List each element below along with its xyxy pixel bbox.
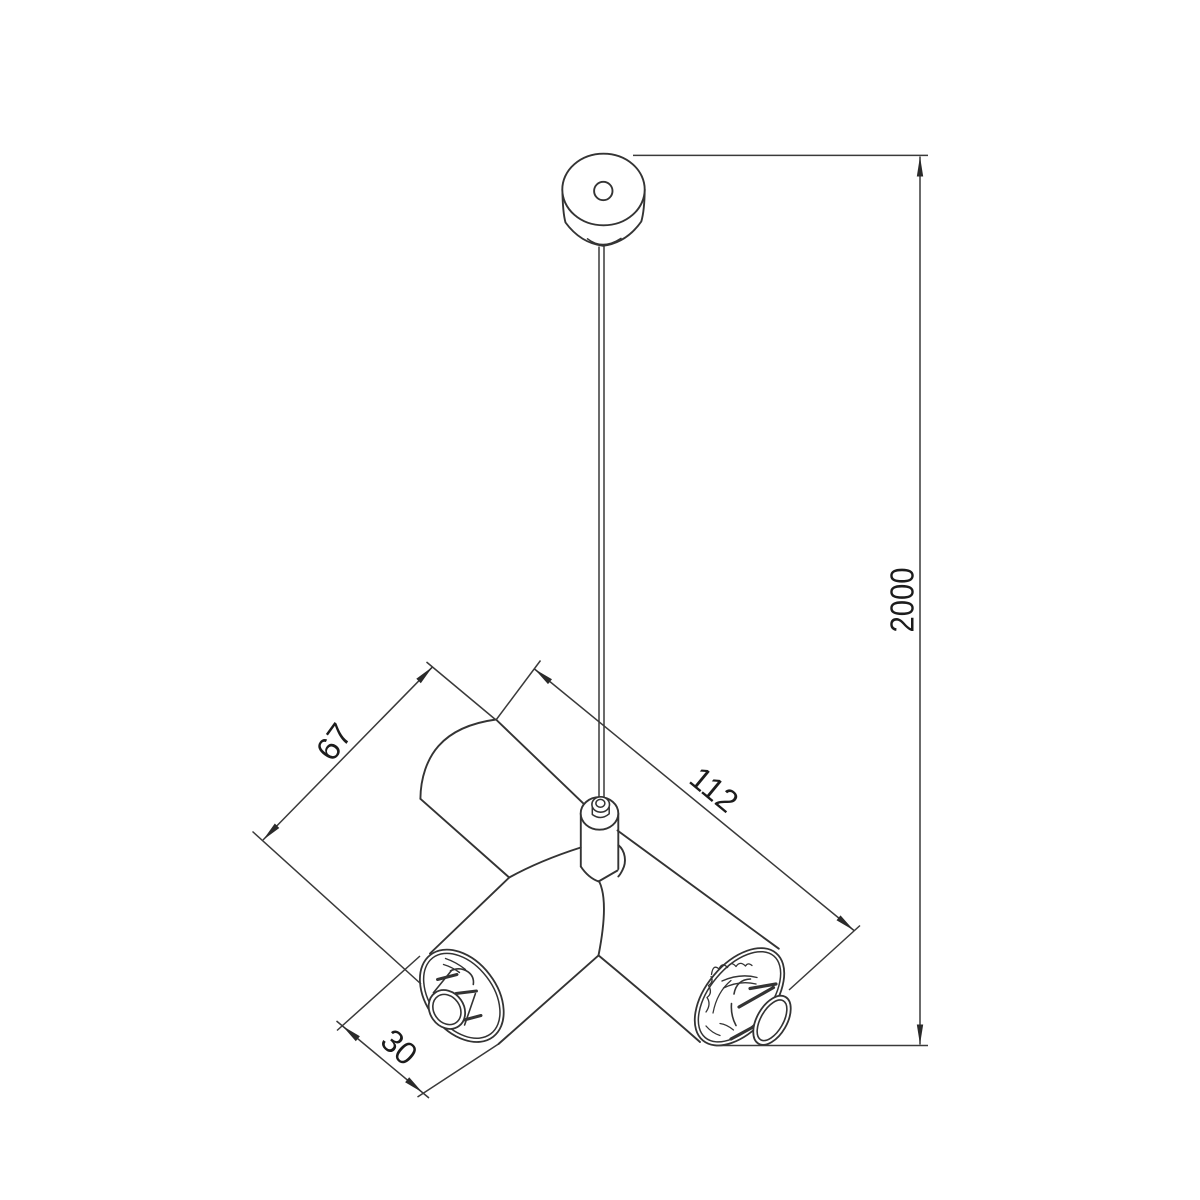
svg-text:112: 112 <box>683 759 745 819</box>
svg-text:2000: 2000 <box>884 568 921 633</box>
svg-text:30: 30 <box>374 1022 425 1073</box>
svg-text:67: 67 <box>309 717 359 767</box>
